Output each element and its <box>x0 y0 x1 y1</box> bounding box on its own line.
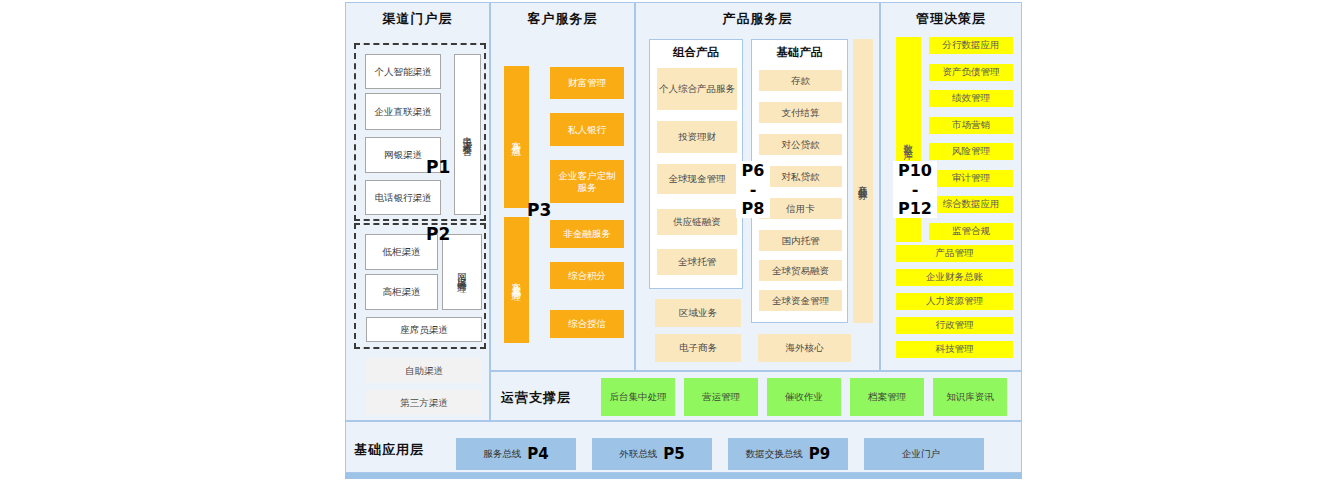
diagram-box: 供应链融资 <box>657 209 737 235</box>
diagram-box: 海外核心 <box>758 334 851 362</box>
layer-product-service: 产品服务层 组合产品 个人综合产品服务 投资理财 全球现金管理 供应链融资 全球… <box>635 2 880 371</box>
diagram-box: 综合授信 <box>550 310 624 338</box>
banking-architecture-diagram: 渠道门户层 个人智能渠道 企业直联渠道 网银渠道 电话银行渠道 电子渠道整合 P… <box>0 0 1333 482</box>
layer-channel-portal: 渠道门户层 个人智能渠道 企业直联渠道 网银渠道 电话银行渠道 电子渠道整合 P… <box>345 2 490 421</box>
diagram-box: 档案管理 <box>850 378 924 416</box>
bottom-accent-strip <box>345 473 1022 479</box>
management-small-boxes: 分行数据应用 资产负债管理 绩效管理 市场营销 风险管理 审计管理 综合数据应用… <box>929 37 1013 240</box>
diagram-box: 国内托管 <box>759 230 842 251</box>
layer-title: 客户服务层 <box>491 10 634 28</box>
p3-label: P3 <box>527 200 551 220</box>
diagram-box: 支付结算 <box>759 102 842 123</box>
diagram-box: 座席员渠道 <box>366 317 482 342</box>
diagram-box: 人力资源管理 <box>896 293 1013 310</box>
diagram-box: 全球贸易融资 <box>759 260 842 281</box>
diagram-box: 监管合规 <box>929 223 1013 240</box>
diagram-box: 自助渠道 <box>366 358 482 383</box>
diagram-box: 行政管理 <box>896 317 1013 334</box>
bus-label: 服务总线 <box>483 448 521 461</box>
branch-channel-group: 低柜渠道 高柜渠道 网点渠道管理 座席员渠道 <box>354 223 486 349</box>
diagram-box: 财富管理 <box>550 67 624 99</box>
vertical-bar-branch-channel-mgmt: 网点渠道管理 <box>442 234 482 310</box>
diagram-box: 企业直联渠道 <box>365 93 441 130</box>
diagram-box: 企业门户 <box>864 438 984 470</box>
diagram-box: 后台集中处理 <box>601 378 675 416</box>
p-range-line: P8 <box>736 199 770 218</box>
bus-label: 企业门户 <box>902 448 940 461</box>
diagram-box: 非金融服务 <box>550 220 624 248</box>
p9-label: P9 <box>809 445 830 463</box>
layer-title: 管理决策层 <box>881 10 1021 28</box>
p5-label: P5 <box>663 445 684 463</box>
diagram-box: 数据交换总线 P9 <box>728 438 848 470</box>
vertical-bar-customer-info: 客户信息 <box>504 66 529 208</box>
diagram-box: 企业财务总账 <box>896 269 1013 286</box>
diagram-box: 存款 <box>759 70 842 91</box>
p-range-line: P10 <box>893 161 937 180</box>
diagram-box: 对私贷款 <box>759 166 842 187</box>
p1-label: P1 <box>426 157 450 177</box>
p2-label: P2 <box>426 224 450 244</box>
diagram-box: 营运管理 <box>684 378 758 416</box>
electronic-channel-group: 个人智能渠道 企业直联渠道 网银渠道 电话银行渠道 电子渠道整合 <box>354 43 486 221</box>
diagram-box: 对公贷款 <box>759 134 842 155</box>
layer-title: 运营支撑层 <box>501 389 571 407</box>
p10-p12-label: P10 - P12 <box>893 161 937 218</box>
diagram-box: 高柜渠道 <box>365 274 438 310</box>
diagram-box: 投资理财 <box>657 121 737 153</box>
diagram-box: 全球资金管理 <box>759 290 842 311</box>
diagram-box: 综合数据应用 <box>929 196 1013 213</box>
diagram-box: 风险管理 <box>929 143 1013 160</box>
diagram-box: 全球托管 <box>657 249 737 275</box>
p-range-line: - <box>736 180 770 199</box>
bus-label: 外联总线 <box>619 448 657 461</box>
diagram-box: 外联总线 P5 <box>592 438 712 470</box>
diagram-box: 市场营销 <box>929 117 1013 134</box>
diagram-box: 个人综合产品服务 <box>657 68 737 110</box>
layer-management-decision: 管理决策层 数据仓库 分行数据应用 资产负债管理 绩效管理 市场营销 风险管理 … <box>880 2 1022 371</box>
group-title: 组合产品 <box>650 45 742 60</box>
diagram-box: 电话银行渠道 <box>365 180 441 215</box>
p4-label: P4 <box>527 445 548 463</box>
group-title: 基础产品 <box>752 45 847 60</box>
layer-title: 渠道门户层 <box>346 10 489 28</box>
diagram-box: 资产负债管理 <box>929 64 1013 81</box>
diagram-box: 产品管理 <box>896 245 1013 262</box>
diagram-box: 分行数据应用 <box>929 37 1013 54</box>
vertical-bar-channel-integration: 电子渠道整合 <box>454 54 481 215</box>
management-wide-boxes: 产品管理 企业财务总账 人力资源管理 行政管理 科技管理 <box>896 245 1013 358</box>
p6-p8-label: P6 - P8 <box>736 161 770 218</box>
diagram-box: 信用卡 <box>759 198 842 219</box>
diagram-box: 个人智能渠道 <box>365 54 441 89</box>
vertical-bar-customer-relationship: 客户关系管理 <box>504 217 529 343</box>
diagram-box: 电子商务 <box>655 334 741 362</box>
diagram-box: 绩效管理 <box>929 90 1013 107</box>
diagram-box: 服务总线 P4 <box>456 438 576 470</box>
layer-base-application: 基础应用层 服务总线 P4 外联总线 P5 数据交换总线 P9 企业门户 <box>345 421 1022 473</box>
diagram-box: 区域业务 <box>655 299 741 327</box>
layer-customer-service: 客户服务层 客户信息 客户关系管理 财富管理 私人银行 企业客户定制服务 非金融… <box>490 2 635 371</box>
diagram-box: 全球现金管理 <box>657 164 737 194</box>
p-range-line: P6 <box>736 161 770 180</box>
ops-boxes: 后台集中处理 营运管理 催收作业 档案管理 知识库资讯 <box>601 378 1007 416</box>
p-range-line: P12 <box>893 199 937 218</box>
diagram-box: 知识库资讯 <box>933 378 1007 416</box>
p-range-line: - <box>893 180 937 199</box>
combo-product-group: 组合产品 个人综合产品服务 投资理财 全球现金管理 供应链融资 全球托管 <box>649 39 743 289</box>
diagram-box: 科技管理 <box>896 341 1013 358</box>
diagram-box: 审计管理 <box>929 170 1013 187</box>
diagram-box: 私人银行 <box>550 113 624 146</box>
vertical-bar-product-public-service: 产品公共服务 <box>853 39 873 323</box>
layer-ops-support: 运营支撑层 后台集中处理 营运管理 催收作业 档案管理 知识库资讯 <box>490 371 1022 421</box>
diagram-box: 企业客户定制服务 <box>550 160 624 203</box>
layer-title: 基础应用层 <box>354 441 424 459</box>
layer-title: 产品服务层 <box>636 10 879 28</box>
diagram-box: 催收作业 <box>767 378 841 416</box>
diagram-box: 综合积分 <box>550 262 624 289</box>
bus-label: 数据交换总线 <box>746 448 803 461</box>
diagram-box: 第三方渠道 <box>366 390 482 415</box>
